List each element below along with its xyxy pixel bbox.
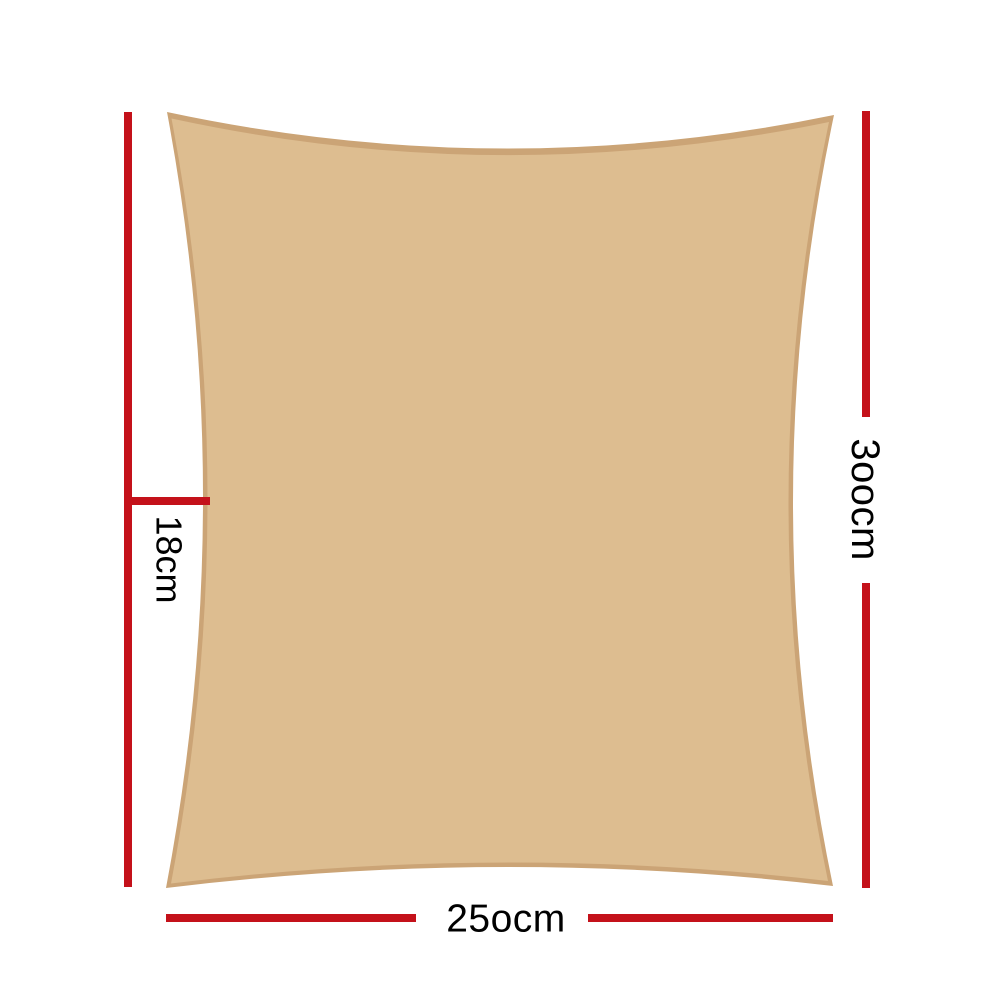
svg-text:18cm: 18cm: [149, 515, 190, 603]
svg-text:3oocm: 3oocm: [843, 438, 887, 561]
svg-text:25ocm: 25ocm: [446, 898, 566, 941]
